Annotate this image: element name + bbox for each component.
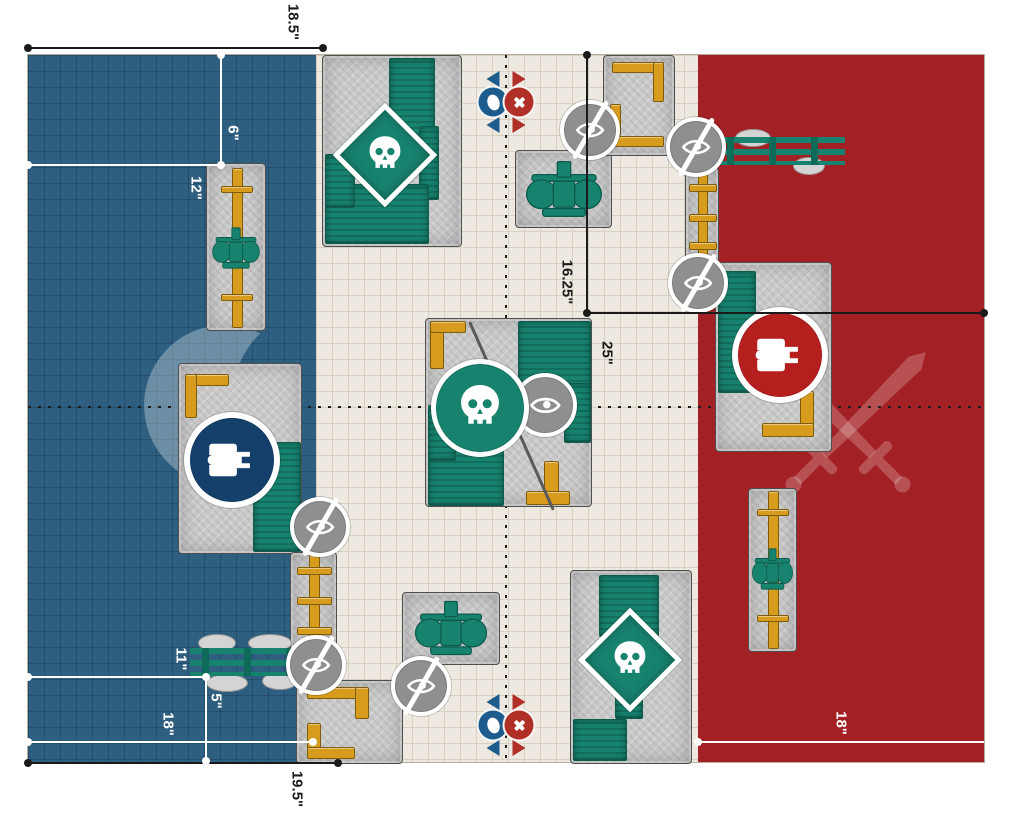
measurement-line-top-width <box>28 47 323 49</box>
gold-detail <box>221 294 253 301</box>
measurement-line-left-upper-vertical <box>220 55 222 165</box>
bridge-right <box>715 137 845 165</box>
measurement-label-left-lower-2: 18" <box>160 712 177 736</box>
measurement-line-left-lower-1 <box>28 676 206 678</box>
gold-detail <box>762 423 814 437</box>
no-line-of-sight-icon <box>290 497 350 557</box>
oval-glyph <box>485 716 501 735</box>
measurement-label-bottom-width: 19.5" <box>289 771 306 807</box>
gold-detail <box>689 214 717 222</box>
pipeline-ruin-left <box>206 163 266 331</box>
red-arrow-icon <box>513 694 526 710</box>
deployment-map-page: 18.5" 6" 12" 16.25" 25" 11" 5" 18" 19.5"… <box>0 0 1012 813</box>
gold-detail <box>307 747 355 759</box>
pipes-right-upper <box>685 167 719 267</box>
red-arrow-icon <box>513 117 526 133</box>
blue-arrow-icon <box>487 694 500 710</box>
teal-detail <box>573 719 627 761</box>
rails-detail <box>715 137 845 165</box>
machinery <box>211 226 261 270</box>
objective-skull-icon <box>431 359 529 457</box>
measurement-line-left-lower-2 <box>28 741 313 743</box>
gold-detail <box>355 687 369 719</box>
gold-detail <box>653 62 664 102</box>
rock-detail <box>206 674 248 692</box>
oval-glyph <box>485 93 501 112</box>
gold-detail <box>757 615 789 622</box>
no-line-of-sight-icon <box>391 656 451 716</box>
pipeline-ruin-right-bottom <box>748 488 797 652</box>
no-line-of-sight-icon <box>560 100 620 160</box>
no-line-of-sight-icon <box>668 253 728 313</box>
gold-detail <box>297 567 332 575</box>
machinery-ruin-top-center <box>515 150 612 228</box>
gold-detail <box>297 597 332 605</box>
machinery <box>413 599 489 657</box>
machinery <box>751 547 794 591</box>
measurement-label-right-lower: 18" <box>833 711 850 735</box>
measurement-line-left-lower-vertical <box>205 677 207 761</box>
blue-arrow-icon <box>487 71 500 87</box>
red-arrow-icon <box>513 71 526 87</box>
measurement-line-center-vertical <box>586 55 588 313</box>
machinery-ruin-bottom-center <box>402 592 500 665</box>
gold-detail <box>297 627 332 635</box>
red-arrow-icon <box>513 740 526 756</box>
blue-arrow-icon <box>487 117 500 133</box>
red-deployment-marker-icon <box>503 709 536 742</box>
gold-detail <box>689 184 717 192</box>
measurement-label-left-upper-h: 12" <box>188 176 205 200</box>
measurement-label-top-width: 18.5" <box>285 4 302 40</box>
measurement-label-center-h: 25" <box>599 341 616 365</box>
battlefield <box>28 55 984 762</box>
gold-detail <box>430 321 466 333</box>
measurement-line-right-lower <box>698 741 984 743</box>
gold-detail <box>185 374 197 418</box>
measurement-line-left-upper-horizontal <box>28 164 221 166</box>
measurement-label-left-lower-v: 5" <box>208 693 225 708</box>
machinery <box>524 159 604 219</box>
red-deployment-marker-icon <box>503 86 536 119</box>
red-vehicle-objective-icon <box>732 307 828 403</box>
gold-detail <box>221 186 253 193</box>
no-line-of-sight-icon <box>666 117 726 177</box>
blue-vehicle-objective-icon <box>184 412 280 508</box>
measurement-label-center-v: 16.25" <box>559 260 576 305</box>
gold-detail <box>757 509 789 516</box>
measurement-line-center-horizontal <box>587 312 984 314</box>
measurement-line-bottom-width <box>28 762 338 764</box>
gold-detail <box>689 242 717 250</box>
measurement-label-left-upper-v: 6" <box>225 125 242 140</box>
no-line-of-sight-icon <box>286 635 346 695</box>
measurement-label-left-lower-1: 11" <box>173 648 190 671</box>
blue-arrow-icon <box>487 740 500 756</box>
